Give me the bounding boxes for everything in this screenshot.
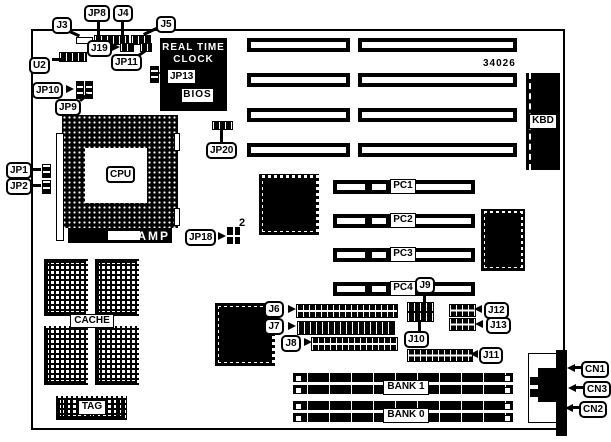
arrow-jp18 <box>218 232 226 240</box>
callout-u2: U2 <box>29 57 50 74</box>
pci-key <box>337 286 365 292</box>
callout-j10: J10 <box>404 331 429 348</box>
arrow-j8 <box>304 338 312 346</box>
jp18-pin-annotation: 2 <box>239 217 245 229</box>
connector-bar <box>556 350 567 436</box>
isa-slot <box>247 108 350 122</box>
amp-socket-bar: AMP <box>68 228 172 243</box>
arrow-j11 <box>470 350 478 358</box>
isa-slot <box>358 143 517 157</box>
pci-key <box>337 184 365 190</box>
arrow-jp10 <box>66 85 74 93</box>
pci-key <box>337 218 365 224</box>
leader-jp1 <box>33 168 41 171</box>
callout-j5: J5 <box>156 16 176 33</box>
arrow-j7 <box>288 322 296 330</box>
pci-key <box>415 184 471 190</box>
isa-slot <box>247 143 350 157</box>
jumper-j19 <box>120 43 134 52</box>
isa-slot <box>247 38 350 52</box>
pin-header-j12 <box>449 304 476 317</box>
pin-header-j6 <box>296 304 398 318</box>
pci-key <box>372 286 386 292</box>
bank0-label: BANK 0 <box>383 408 429 423</box>
amp-label: AMP <box>137 229 170 243</box>
callout-cn3: CN3 <box>583 381 611 398</box>
callout-jp2: JP2 <box>6 178 32 195</box>
cpu-label: CPU <box>106 166 135 183</box>
pin-header-j13 <box>449 318 476 331</box>
qfp-chip <box>485 213 521 267</box>
callout-j8: J8 <box>281 335 301 352</box>
callout-j19: J19 <box>87 40 112 57</box>
cache-chip <box>46 261 86 314</box>
pci-label-pc2: PC2 <box>390 213 416 228</box>
callout-jp10: JP10 <box>32 82 63 99</box>
isa-slot <box>247 73 350 87</box>
callout-jp1: JP1 <box>6 162 32 179</box>
pin-header-j8 <box>311 337 398 351</box>
kbd-label: KBD <box>529 114 557 129</box>
connector-block <box>538 368 556 402</box>
callout-cn2: CN2 <box>579 401 607 418</box>
callout-j13: J13 <box>486 317 511 334</box>
pci-key <box>415 252 471 258</box>
connector-nub <box>530 389 538 397</box>
cache-chip <box>46 328 86 383</box>
callout-j3: J3 <box>52 17 72 34</box>
pci-key <box>372 218 386 224</box>
callout-cn1: CN1 <box>581 361 609 378</box>
cache-label: CACHE <box>70 314 114 328</box>
callout-j11: J11 <box>479 347 503 364</box>
arrow-jp13 <box>158 69 166 77</box>
cache-chip <box>97 261 137 314</box>
arrow-j13 <box>475 320 483 328</box>
rtc-label-line1: REAL TIME <box>160 38 227 54</box>
qfp-chip <box>263 178 315 231</box>
part-number: 34026 <box>483 58 516 69</box>
qfp-chip <box>219 307 271 362</box>
isa-slot <box>358 73 517 87</box>
pin-header-u2 <box>59 52 87 62</box>
leader-j10 <box>418 320 421 331</box>
pci-key <box>415 218 471 224</box>
callout-jp9: JP9 <box>55 99 81 116</box>
isa-slot <box>358 38 517 52</box>
callout-jp18: JP18 <box>185 229 216 246</box>
pin-header-j11 <box>407 349 473 362</box>
pci-label-pc1: PC1 <box>390 179 416 194</box>
callout-jp8: JP8 <box>84 5 110 22</box>
callout-jp20: JP20 <box>206 142 237 159</box>
callout-j9: J9 <box>415 277 435 294</box>
callout-jp13: JP13 <box>166 68 197 85</box>
bios-chip: BIOS <box>181 88 214 103</box>
pci-label-pc3: PC3 <box>390 247 416 262</box>
pci-key <box>372 184 386 190</box>
callout-j4: J4 <box>113 5 133 22</box>
jumper-jp1 <box>42 164 51 178</box>
pin-header-j9 <box>407 302 434 312</box>
callout-j6: J6 <box>264 301 284 318</box>
leader-u2 <box>52 58 61 61</box>
leader-jp20 <box>220 128 223 143</box>
socket-tab-top <box>174 133 180 151</box>
pci-key <box>337 252 365 258</box>
pci-key <box>372 252 386 258</box>
arrow-j19 <box>112 43 120 51</box>
isa-slot <box>358 108 517 122</box>
jumper-jp2 <box>42 180 51 194</box>
pin-header-j7 <box>297 321 395 335</box>
bank1-label: BANK 1 <box>383 380 429 395</box>
socket-lever <box>56 133 64 241</box>
connector-nub <box>530 377 538 385</box>
callout-jp11: JP11 <box>111 54 142 71</box>
socket-tab-bottom <box>174 208 180 226</box>
tag-label: TAG <box>78 400 106 415</box>
arrow-j6 <box>288 305 296 313</box>
jumper-jp18 <box>227 227 240 244</box>
motherboard-diagram: J3 JP8 J4 J5 J19 JP11 U2 JP10 JP9 REAL T… <box>0 0 611 442</box>
amp-notch <box>108 231 140 240</box>
leader-jp2 <box>33 184 41 187</box>
cache-chip <box>97 328 137 383</box>
callout-j7: J7 <box>264 318 284 335</box>
rtc-label-line2: CLOCK <box>160 54 227 66</box>
pci-label-pc4: PC4 <box>390 281 416 296</box>
arrow-j12 <box>474 305 482 313</box>
